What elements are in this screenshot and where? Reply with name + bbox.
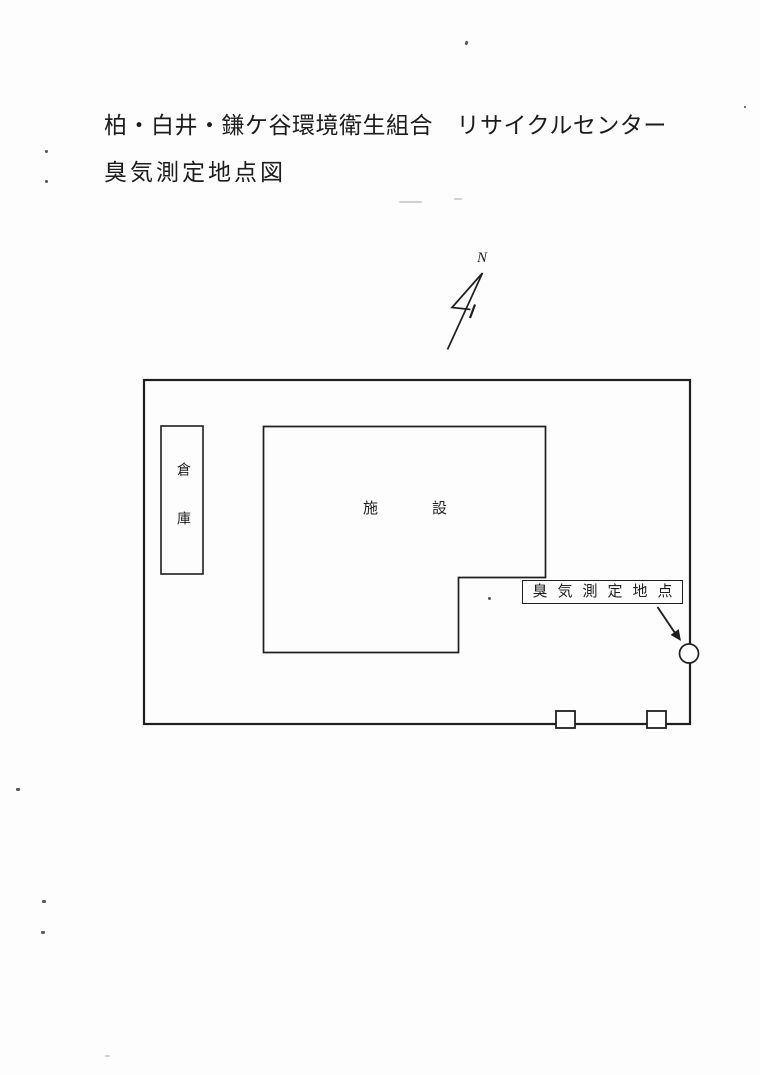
leader-arrow <box>658 607 682 641</box>
warehouse-label: 倉庫 <box>175 462 189 560</box>
measurement-point-callout: 臭気測定地点 <box>522 580 683 604</box>
north-arrow-icon <box>448 273 483 350</box>
scanned-document-page: { "document": { "title_line1": "柏・白井・鎌ケ谷… <box>0 0 760 1075</box>
north-label: N <box>477 250 487 267</box>
measurement-point-circle <box>680 644 699 663</box>
document-title: 柏・白井・鎌ケ谷環境衛生組合 リサイクルセンター <box>104 112 667 141</box>
facility-label: 施設 <box>363 497 501 518</box>
document-subtitle: 臭気測定地点図 <box>104 159 286 188</box>
measurement-point-label: 臭気測定地点 <box>532 585 682 600</box>
gate-square-left <box>556 711 575 728</box>
facility-outline <box>264 427 546 653</box>
gate-square-right <box>647 711 666 728</box>
